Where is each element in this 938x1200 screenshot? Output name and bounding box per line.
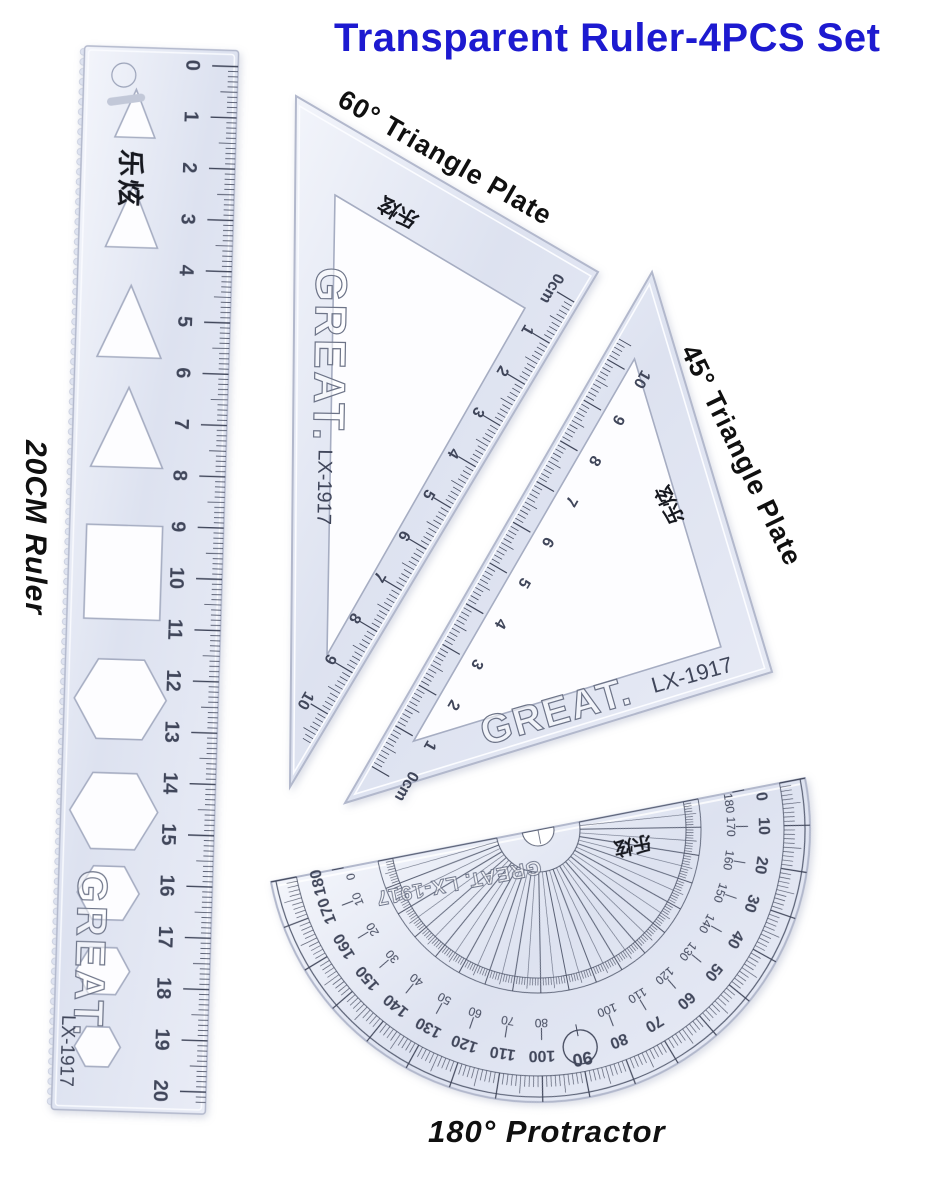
ruler-number: 14 [158, 772, 181, 796]
protractor-degree-inner: 80 [534, 1016, 548, 1030]
ruler-number: 9 [167, 521, 189, 533]
protractor-degree-inner: 70 [500, 1013, 516, 1029]
ruler-logo-dash [111, 97, 141, 103]
label-20cm-ruler: 20CM Ruler [18, 440, 52, 615]
ruler-number: 12 [162, 669, 185, 692]
protractor-degree-outer: 20 [751, 855, 771, 875]
ruler-number: 7 [170, 418, 192, 430]
ruler-number: 2 [178, 162, 200, 174]
ruler-number: 19 [150, 1028, 173, 1051]
ruler-number: 1 [179, 111, 201, 123]
protractor-degree-outer: 90 [571, 1047, 594, 1070]
ruler-number: 8 [168, 470, 190, 482]
ruler-number: 5 [173, 316, 195, 328]
ruler-number: 16 [155, 874, 178, 897]
label-180-protractor: 180° Protractor [428, 1114, 666, 1150]
ruler-number: 11 [163, 618, 186, 640]
ruler-number: 4 [175, 264, 197, 277]
tri60-model: LX-1917 [312, 449, 335, 525]
ruler-model: LX-1917 [55, 1015, 78, 1087]
ruler-number: 20 [149, 1079, 172, 1102]
tri60-brand: GREAT. [303, 267, 355, 444]
product-photo-canvas: 0cm12345678910乐炫GREAT.LX-19170cm12345678… [0, 0, 938, 1200]
ruler-brand-cn: 乐炫 [114, 149, 147, 210]
ruler-number: 0 [181, 59, 203, 71]
ruler-20cm: 01234567891011121314151617181920乐炫GREAT.… [47, 46, 239, 1114]
ruler-number: 13 [160, 720, 183, 743]
ruler-number: 6 [171, 367, 193, 379]
ruler-number: 10 [165, 567, 188, 590]
protractor-degree-outer: 100 [528, 1047, 555, 1064]
protractor-180: 0102030405060708090100110120130140150160… [270, 774, 857, 1149]
ruler-cutout-square [84, 524, 163, 620]
protractor-degree-inner: 170 [724, 816, 738, 837]
page-title: Transparent Ruler-4PCS Set [334, 16, 881, 61]
ruler-number: 18 [152, 977, 175, 1000]
ruler-number: 17 [153, 925, 176, 948]
ruler-number: 3 [176, 213, 198, 225]
protractor-degree-inner: 180 [721, 792, 738, 814]
protractor-degree-outer: 10 [755, 817, 772, 835]
ruler-number: 15 [157, 823, 180, 846]
